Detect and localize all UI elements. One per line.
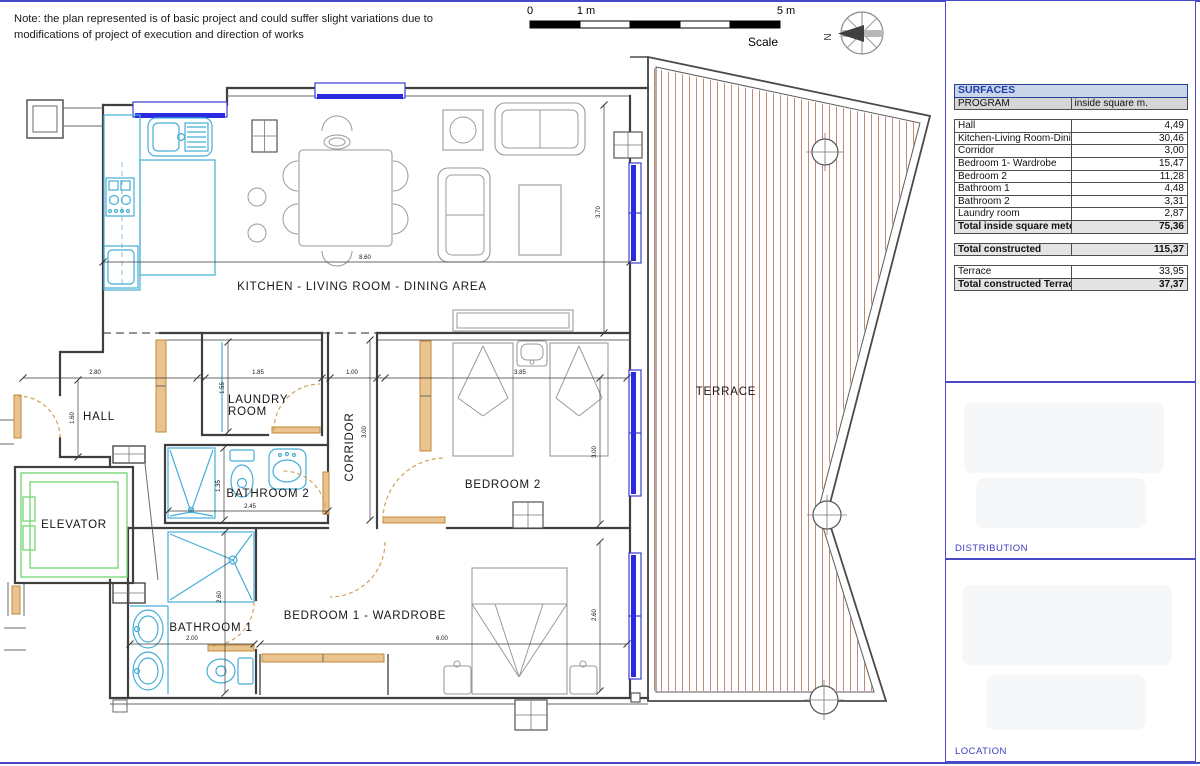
room-label-laundry-2: ROOM (228, 406, 267, 418)
table-row: Corridor3,00 (955, 145, 1188, 158)
terrace-area (648, 57, 930, 720)
bed-single (453, 343, 513, 456)
table-col1-header: PROGRAM (955, 97, 1072, 110)
dim-label: 3.00 (362, 426, 368, 438)
coffee-table (519, 185, 561, 255)
sofa (495, 103, 585, 155)
table-cell-program: Terrace (955, 266, 1072, 279)
toilet-icon (207, 658, 253, 684)
table-cell-value: 4,48 (1071, 183, 1188, 196)
table-cell-program (955, 110, 1072, 120)
table-row: Bathroom 14,48 (955, 183, 1188, 196)
table-cell-program (955, 233, 1072, 243)
right-panel: SURFACES PROGRAM inside square m. Hall4,… (945, 2, 1200, 762)
north-compass-icon: N (823, 12, 883, 54)
table-row: Kitchen-Living Room-Dining area30,46 (955, 132, 1188, 145)
laundry-door (272, 384, 320, 433)
sink-icon (133, 610, 163, 648)
room-label-elevator: ELEVATOR (41, 519, 107, 531)
table-cell-program: Hall (955, 120, 1072, 133)
table-row: Hall4,49 (955, 120, 1188, 133)
bed-double (472, 568, 567, 694)
dim-label: 2.60 (592, 609, 598, 621)
dim-label: 1.00 (346, 370, 358, 376)
table-title: SURFACES (955, 85, 1188, 98)
room-label-bedroom2: BEDROOM 2 (465, 479, 541, 491)
dim-label: 6.00 (436, 636, 448, 642)
dim-label: 2.80 (89, 370, 101, 376)
table-cell-program: Bathroom 2 (955, 195, 1072, 208)
distribution-label: DISTRIBUTION (955, 543, 1028, 554)
table-cell-program: Laundry room (955, 208, 1072, 221)
dim-label: 8.60 (359, 255, 371, 261)
table-title-row: SURFACES (955, 85, 1188, 98)
kitchen-sink-icon (148, 118, 212, 156)
sheet-bottom-border (0, 762, 1200, 764)
table-cell-program: Kitchen-Living Room-Dining area (955, 132, 1072, 145)
table-row: Bedroom 1- Wardrobe15,47 (955, 157, 1188, 170)
room-label-kitchen: KITCHEN - LIVING ROOM - DINING AREA (237, 281, 487, 293)
dim-label: 1.85 (252, 370, 264, 376)
table-row: Bedroom 211,28 (955, 170, 1188, 183)
dim-label: 2.45 (244, 504, 256, 510)
scale-tick-0: 0 (527, 5, 533, 17)
nightstand (517, 341, 547, 366)
sink-icon (269, 449, 306, 489)
dining-table (299, 150, 392, 246)
table-row: Total constructed Terraces37,37 (955, 278, 1188, 291)
table-header-row: PROGRAM inside square m. (955, 97, 1188, 110)
floor-plan-drawing: 8.60 3.70 2.80 1.60 1.85 1.55 1.00 3.00 … (0, 0, 945, 766)
table-row: Total constructed115,37 (955, 243, 1188, 256)
table-spacer-row (955, 110, 1188, 120)
dim-label: 1.60 (70, 412, 76, 424)
exterior-door (12, 586, 20, 614)
table-cell-value (1071, 256, 1188, 266)
table-cell-value: 33,95 (1071, 266, 1188, 279)
bathroom1-fixtures (130, 532, 254, 694)
living-furniture (438, 103, 585, 331)
dim-label: 1.55 (220, 382, 226, 394)
bedroom1-door (330, 542, 385, 597)
bedroom1-furniture (444, 568, 597, 694)
table-cell-value: 3,31 (1071, 195, 1188, 208)
location-label: LOCATION (955, 746, 1007, 757)
scale-bar: 0 1 m 5 m Scale (527, 5, 795, 49)
dim-label: 3.70 (596, 206, 602, 218)
room-label-corridor: CORRIDOR (344, 412, 356, 481)
table-cell-value: 75,36 (1071, 220, 1188, 233)
table-cell-value: 37,37 (1071, 278, 1188, 291)
location-section: LOCATION (945, 559, 1196, 762)
scale-label: Scale (748, 35, 778, 49)
table-cell-program: Corridor (955, 145, 1072, 158)
kitchen-fixtures (104, 115, 215, 290)
table-row: Bathroom 23,31 (955, 195, 1188, 208)
bedroom2-door (383, 458, 445, 523)
dim-label: 3.85 (514, 370, 526, 376)
table-cell-value: 115,37 (1071, 243, 1188, 256)
dim-label: 1.35 (216, 480, 222, 492)
dim-label: 3.00 (592, 446, 598, 458)
table-cell-value: 15,47 (1071, 157, 1188, 170)
sink-icon (133, 652, 163, 690)
table-row: Terrace33,95 (955, 266, 1188, 279)
nightstand (570, 661, 597, 694)
window-icon (629, 553, 641, 679)
dim-label: 2.00 (186, 636, 198, 642)
room-label-bedroom1: BEDROOM 1 - WARDROBE (284, 610, 447, 622)
bedroom2-furniture (453, 341, 608, 456)
table-cell-program: Bathroom 1 (955, 183, 1072, 196)
table-cell-value (1071, 233, 1188, 243)
nightstand (444, 661, 471, 694)
surfaces-table: SURFACES PROGRAM inside square m. Hall4,… (954, 84, 1188, 291)
side-table (443, 110, 483, 150)
table-cell-program (955, 256, 1072, 266)
table-cell-program: Bedroom 2 (955, 170, 1072, 183)
room-label-bathroom1: BATHROOM 1 (169, 622, 252, 634)
room-label-bathroom2: BATHROOM 2 (226, 488, 309, 500)
table-cell-program: Total constructed Terraces (955, 278, 1072, 291)
table-cell-value: 2,87 (1071, 208, 1188, 221)
bathroom2-fixtures (168, 448, 306, 518)
table-spacer-row (955, 256, 1188, 266)
fridge-icon (104, 246, 138, 288)
sofa (438, 168, 490, 262)
table-cell-value: 30,46 (1071, 132, 1188, 145)
room-label-terrace: TERRACE (696, 386, 757, 398)
compass-north-label: N (823, 33, 834, 40)
stool (248, 224, 266, 242)
stove-icon (106, 178, 134, 216)
window-icon (133, 102, 227, 118)
shower-icon (168, 532, 254, 602)
scale-tick-1m: 1 m (577, 5, 595, 17)
room-label-laundry-1: LAUNDRY (228, 394, 288, 406)
surfaces-table-rows: SURFACES PROGRAM inside square m. Hall4,… (955, 85, 1188, 291)
distribution-section: DISTRIBUTION (945, 382, 1196, 559)
shower-icon (168, 448, 215, 518)
table-row: Laundry room2,87 (955, 208, 1188, 221)
table-cell-value: 11,28 (1071, 170, 1188, 183)
window-icon (315, 83, 405, 99)
dim-label: 2.60 (217, 591, 223, 603)
room-label-hall: HALL (83, 411, 115, 423)
table-col2-header: inside square m. (1071, 97, 1188, 110)
table-spacer-row (955, 233, 1188, 243)
scale-tick-5m: 5 m (777, 5, 795, 17)
entrance-door (14, 395, 60, 438)
table-cell-value: 3,00 (1071, 145, 1188, 158)
stool (248, 188, 266, 206)
window-icon (629, 370, 641, 496)
window-icon (629, 163, 641, 263)
table-cell-value (1071, 110, 1188, 120)
table-cell-program: Total constructed (955, 243, 1072, 256)
bed-single (550, 343, 608, 456)
table-cell-value: 4,49 (1071, 120, 1188, 133)
table-row: Total inside square meter75,36 (955, 220, 1188, 233)
surfaces-section: SURFACES PROGRAM inside square m. Hall4,… (945, 0, 1196, 382)
table-cell-program: Bedroom 1- Wardrobe (955, 157, 1072, 170)
table-cell-program: Total inside square meter (955, 220, 1072, 233)
